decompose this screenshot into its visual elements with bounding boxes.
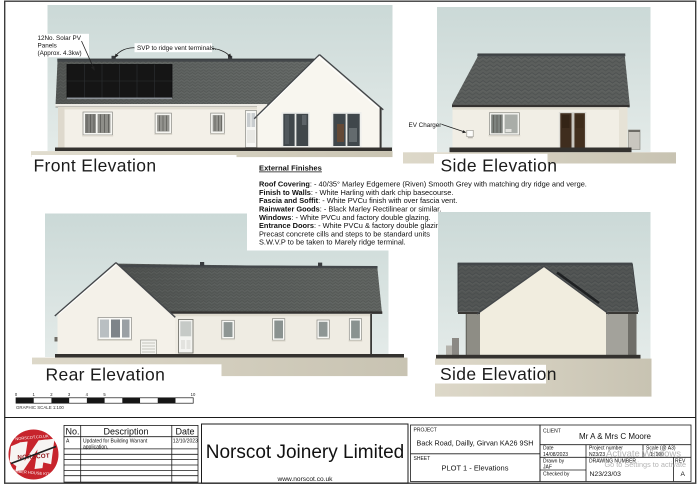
svg-text:JAF: JAF: [543, 465, 552, 471]
svg-text:(Approx. 4.3kw): (Approx. 4.3kw): [38, 50, 82, 57]
svg-text:Norscot Joinery Limited: Norscot Joinery Limited: [206, 442, 405, 463]
svg-text:10: 10: [191, 392, 196, 397]
svg-text:S.W.V.P to be taken to Marely: S.W.V.P to be taken to Marely ridge term…: [259, 238, 406, 247]
svg-text:Side Elevation: Side Elevation: [440, 364, 557, 384]
svg-text:Side Elevation: Side Elevation: [441, 156, 558, 176]
svg-text:application.: application.: [83, 444, 108, 450]
svg-text:N23/23: N23/23: [589, 452, 605, 458]
svg-text:External Finishes: External Finishes: [259, 164, 322, 173]
svg-text:SVP to ridge vent terminals.: SVP to ridge vent terminals.: [137, 45, 216, 52]
svg-text:EV Charger: EV Charger: [409, 122, 442, 129]
svg-text:Panels: Panels: [38, 43, 57, 50]
svg-text:Mr A & Mrs C Moore: Mr A & Mrs C Moore: [579, 432, 652, 441]
svg-text:PLOT 1 - Elevations: PLOT 1 - Elevations: [442, 464, 509, 473]
svg-text:Go to Settings to activate: Go to Settings to activate: [605, 460, 687, 469]
svg-text:Date: Date: [175, 426, 194, 436]
svg-text:Rear Elevation: Rear Elevation: [46, 365, 166, 385]
svg-text:Back Road, Dailly, Girvan KA26: Back Road, Dailly, Girvan KA26 9SH: [417, 439, 534, 448]
svg-text:Description: Description: [103, 426, 148, 436]
svg-text:Drawn by: Drawn by: [543, 458, 565, 464]
svg-text:PROJECT: PROJECT: [414, 427, 437, 433]
svg-text:No.: No.: [66, 426, 80, 436]
svg-text:CLIENT: CLIENT: [543, 428, 561, 434]
svg-text:www.norscot.co.uk: www.norscot.co.uk: [277, 476, 334, 483]
svg-text:Front Elevation: Front Elevation: [34, 156, 157, 176]
svg-text:14/08/2023: 14/08/2023: [543, 452, 568, 458]
svg-text:GRAPHIC SCALE 1:100: GRAPHIC SCALE 1:100: [16, 405, 64, 410]
svg-text:Checked by: Checked by: [543, 472, 570, 478]
svg-text:Activate Windows: Activate Windows: [606, 448, 681, 459]
svg-text:SHEET: SHEET: [414, 456, 431, 462]
svg-text:N23/23/03: N23/23/03: [590, 471, 622, 478]
svg-text:Date: Date: [543, 446, 554, 452]
svg-text:12/10/2023: 12/10/2023: [173, 439, 198, 445]
svg-text:12No. Solar PV: 12No. Solar PV: [38, 35, 82, 42]
svg-text:A: A: [681, 471, 686, 478]
